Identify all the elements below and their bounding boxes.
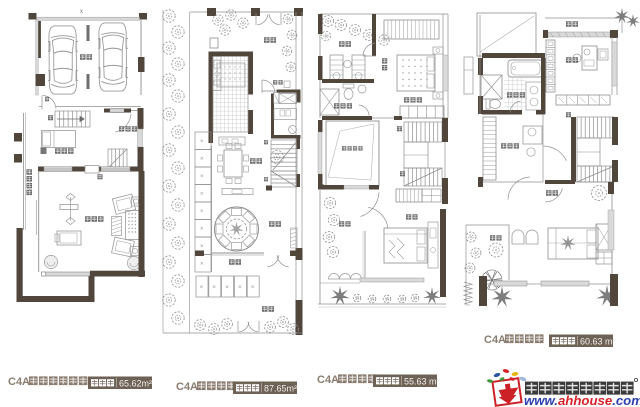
- svg-text:×: ×: [200, 157, 204, 163]
- svg-text:C4A: C4A: [8, 376, 30, 388]
- svg-text:C4A: C4A: [317, 374, 339, 386]
- svg-text:×: ×: [200, 174, 204, 180]
- svg-text:×: ×: [200, 227, 204, 233]
- svg-text:C4A: C4A: [484, 334, 506, 346]
- svg-text:55.63 m²: 55.63 m²: [404, 376, 440, 386]
- svg-text:×: ×: [251, 284, 255, 291]
- svg-text:x: x: [80, 9, 83, 15]
- svg-text:×: ×: [200, 262, 204, 268]
- svg-text:65.62m²: 65.62m²: [119, 378, 152, 388]
- svg-text:×: ×: [200, 244, 204, 250]
- svg-text:×: ×: [200, 192, 204, 198]
- svg-text:C4A: C4A: [176, 381, 198, 393]
- svg-text:87.65m²: 87.65m²: [264, 383, 297, 393]
- svg-text:×: ×: [238, 284, 242, 291]
- svg-text:×: ×: [225, 284, 229, 291]
- svg-text:×: ×: [200, 284, 204, 291]
- svg-text:×: ×: [200, 209, 204, 215]
- svg-text:60.63 m²: 60.63 m²: [580, 336, 616, 346]
- svg-text:www.ahhouse.com: www.ahhouse.com: [524, 393, 640, 407]
- svg-text:×: ×: [212, 284, 216, 291]
- svg-text:×: ×: [200, 139, 204, 145]
